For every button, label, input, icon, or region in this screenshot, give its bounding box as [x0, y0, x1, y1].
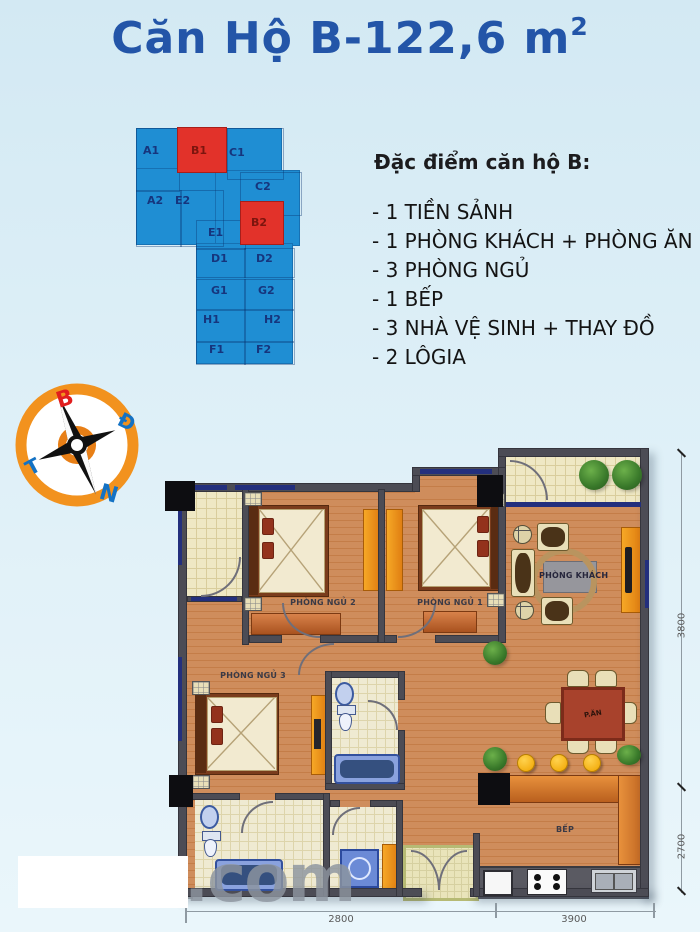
- room-label-bedroom1: PHÒNG NGỦ 1: [405, 598, 495, 607]
- toilet: [337, 705, 354, 731]
- window: [420, 469, 492, 474]
- wall: [473, 833, 480, 897]
- sofa: [511, 549, 535, 597]
- unit-cell: [136, 128, 180, 192]
- compass: B Đ T N: [12, 380, 142, 510]
- pillow: [211, 728, 223, 745]
- nightstand: [244, 492, 262, 506]
- nightstand: [192, 775, 210, 789]
- nightstand: [192, 681, 210, 695]
- wall: [330, 800, 340, 807]
- shaft: [165, 481, 195, 511]
- wall: [242, 489, 249, 645]
- unit-label-c1: C1: [229, 146, 245, 159]
- unit-label-e2: E2: [175, 194, 190, 207]
- tv: [314, 719, 321, 749]
- window: [178, 503, 182, 565]
- unit-label-a1: A1: [143, 144, 159, 157]
- dimension-tick: [495, 903, 497, 918]
- pillow: [477, 516, 489, 533]
- shaft: [169, 775, 193, 807]
- nightstand: [244, 597, 262, 611]
- features-heading: Đặc điểm căn hộ B:: [374, 150, 698, 174]
- white-overlay: [18, 856, 188, 908]
- unit-label-h1: H1: [203, 313, 220, 326]
- column: [483, 870, 513, 896]
- plant: [579, 460, 609, 490]
- wall: [498, 448, 649, 457]
- bar-stool: [583, 754, 601, 772]
- shaft: [477, 475, 503, 507]
- pillow: [477, 540, 489, 557]
- side-table: [515, 601, 534, 620]
- stove: [527, 869, 567, 895]
- wall: [320, 635, 378, 643]
- window: [193, 485, 227, 490]
- unit-location-map: A1 B1 C1 A2 E2 C2 E1 B2 D1 D2 G1 G2 H1 H…: [133, 124, 309, 370]
- wardrobe: [386, 509, 403, 591]
- wall: [325, 671, 332, 790]
- window: [178, 657, 182, 741]
- unit-label-c2: C2: [255, 180, 271, 193]
- plant: [483, 747, 507, 771]
- watermark: .com: [184, 840, 354, 917]
- sink: [200, 805, 219, 829]
- pillow: [262, 542, 274, 559]
- dimension-right-bottom: 2700: [677, 827, 688, 867]
- wall: [187, 793, 240, 800]
- dining-chair: [567, 670, 589, 687]
- dimension-bottom-right: 3900: [534, 914, 614, 925]
- wall: [640, 448, 649, 897]
- wall: [249, 635, 282, 643]
- bed-headboard: [195, 693, 206, 773]
- wall: [398, 671, 405, 700]
- feature-item: - 2 LÔGIA: [372, 343, 698, 372]
- wall: [378, 489, 385, 643]
- page-title-sup: 2: [570, 12, 588, 41]
- tv: [625, 547, 632, 593]
- window: [235, 485, 295, 490]
- unit-label-d2: D2: [256, 252, 273, 265]
- room-label-bedroom3: PHÒNG NGỦ 3: [203, 671, 303, 680]
- room-label-living: PHÒNG KHÁCH: [539, 571, 599, 580]
- feature-item: - 1 TIỀN SẢNH: [372, 198, 698, 227]
- armchair: [537, 523, 569, 551]
- pillow: [262, 518, 274, 535]
- pillow: [211, 706, 223, 723]
- unit-label-b1: B1: [191, 144, 207, 157]
- bar-stool: [550, 754, 568, 772]
- unit-label-e1: E1: [208, 226, 223, 239]
- wall: [325, 671, 405, 678]
- unit-label-f1: F1: [209, 343, 224, 356]
- shaft: [478, 773, 510, 805]
- unit-label-h2: H2: [264, 313, 281, 326]
- unit-label-g2: G2: [258, 284, 275, 297]
- kitchen-sink: [591, 869, 637, 893]
- dimension-right-top: 3800: [677, 606, 688, 646]
- dining-chair: [595, 670, 617, 687]
- unit-label-b2: B2: [251, 216, 267, 229]
- unit-label-f2: F2: [256, 343, 271, 356]
- wall: [396, 800, 403, 897]
- plant: [483, 641, 507, 665]
- plant: [617, 745, 641, 765]
- wall: [325, 783, 405, 790]
- feature-item: - 3 PHÒNG NGỦ: [372, 256, 698, 285]
- bathtub: [334, 754, 400, 784]
- wall: [275, 793, 330, 800]
- armchair: [541, 597, 573, 625]
- feature-item: - 1 PHÒNG KHÁCH + PHÒNG ĂN: [372, 227, 698, 256]
- kitchen-bar-counter: [508, 775, 622, 803]
- feature-item: - 3 NHÀ VỆ SINH + THAY ĐỒ: [372, 314, 698, 343]
- feature-item: - 1 BẾP: [372, 285, 698, 314]
- dimension-tick: [653, 903, 655, 918]
- bar-stool: [517, 754, 535, 772]
- room-label-bedroom2: PHÒNG NGỦ 2: [273, 598, 373, 607]
- wall: [384, 635, 397, 643]
- features-panel: Đặc điểm căn hộ B: - 1 TIỀN SẢNH - 1 PHÒ…: [372, 150, 698, 372]
- unit-label-g1: G1: [211, 284, 228, 297]
- window: [645, 560, 649, 608]
- window: [191, 597, 237, 601]
- compass-rose-icon: B Đ T N: [12, 380, 142, 510]
- plant: [612, 460, 642, 490]
- dining-chair: [545, 702, 561, 724]
- page-title-text: Căn Hộ B-122,6 m: [111, 13, 570, 64]
- room-label-kitchen: BẾP: [545, 825, 585, 834]
- side-table: [513, 525, 532, 544]
- window: [506, 502, 641, 507]
- dining-table: P.ĂN: [561, 687, 625, 741]
- unit-label-d1: D1: [211, 252, 228, 265]
- dining-table-label: P.ĂN: [584, 709, 603, 720]
- sink: [335, 682, 354, 706]
- page-title: Căn Hộ B-122,6 m2: [0, 12, 700, 64]
- unit-label-a2: A2: [147, 194, 163, 207]
